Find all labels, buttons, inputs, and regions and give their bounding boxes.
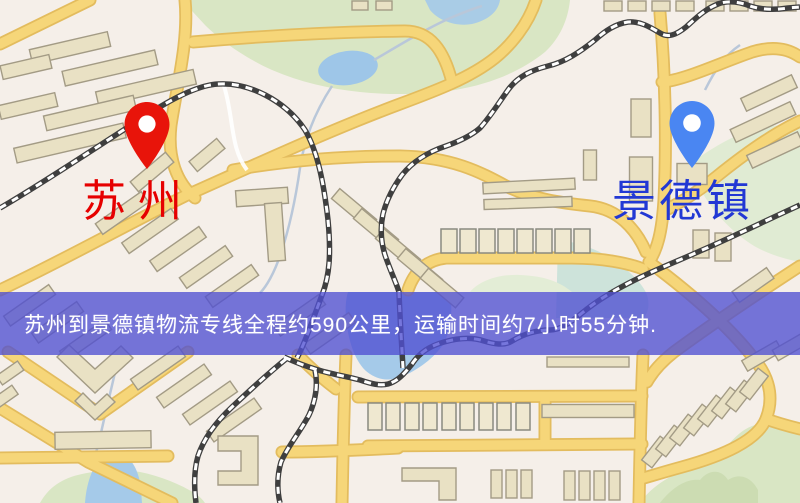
destination-label: 景德镇 <box>612 180 753 224</box>
map-view[interactable]: 苏州 景德镇 苏州到景德镇物流专线全程约590公里，运输时间约7小时55分钟. <box>0 0 800 503</box>
route-info-banner: 苏州到景德镇物流专线全程约590公里，运输时间约7小时55分钟. <box>0 292 800 355</box>
map-canvas[interactable] <box>0 0 800 503</box>
route-info-text: 苏州到景德镇物流专线全程约590公里，运输时间约7小时55分钟. <box>24 309 657 339</box>
origin-label: 苏州 <box>82 180 194 224</box>
